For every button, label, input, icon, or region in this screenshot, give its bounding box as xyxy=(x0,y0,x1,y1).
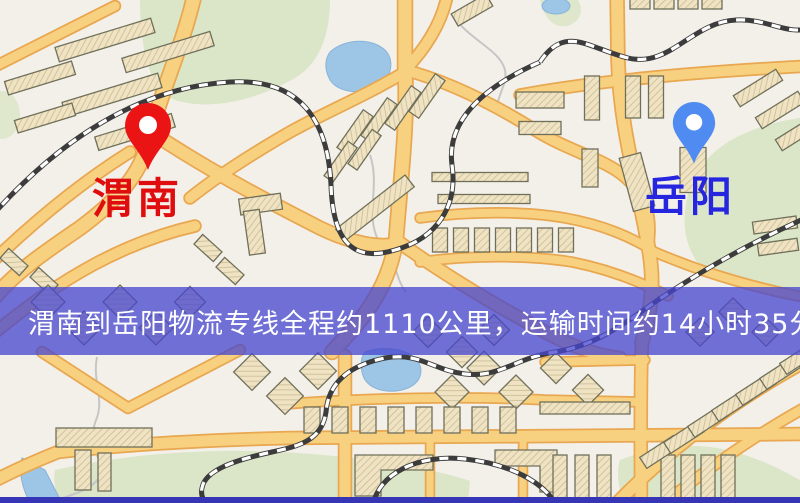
pin-hole xyxy=(686,114,703,131)
route-info-banner: 渭南到岳阳物流专线全程约1110公里，运输时间约14小时35分钟. xyxy=(0,287,800,355)
route-info-text: 渭南到岳阳物流专线全程约1110公里，运输时间约14小时35分钟. xyxy=(28,302,800,341)
bottom-strip xyxy=(0,497,800,503)
marker-label-weinan: 渭南 xyxy=(92,178,182,220)
marker-label-yueyang: 岳阳 xyxy=(645,176,735,218)
pin-hole xyxy=(139,116,157,134)
map-canvas[interactable] xyxy=(0,0,800,503)
map-view[interactable]: 渭南 岳阳 渭南到岳阳物流专线全程约1110公里，运输时间约14小时35分钟. xyxy=(0,0,800,503)
